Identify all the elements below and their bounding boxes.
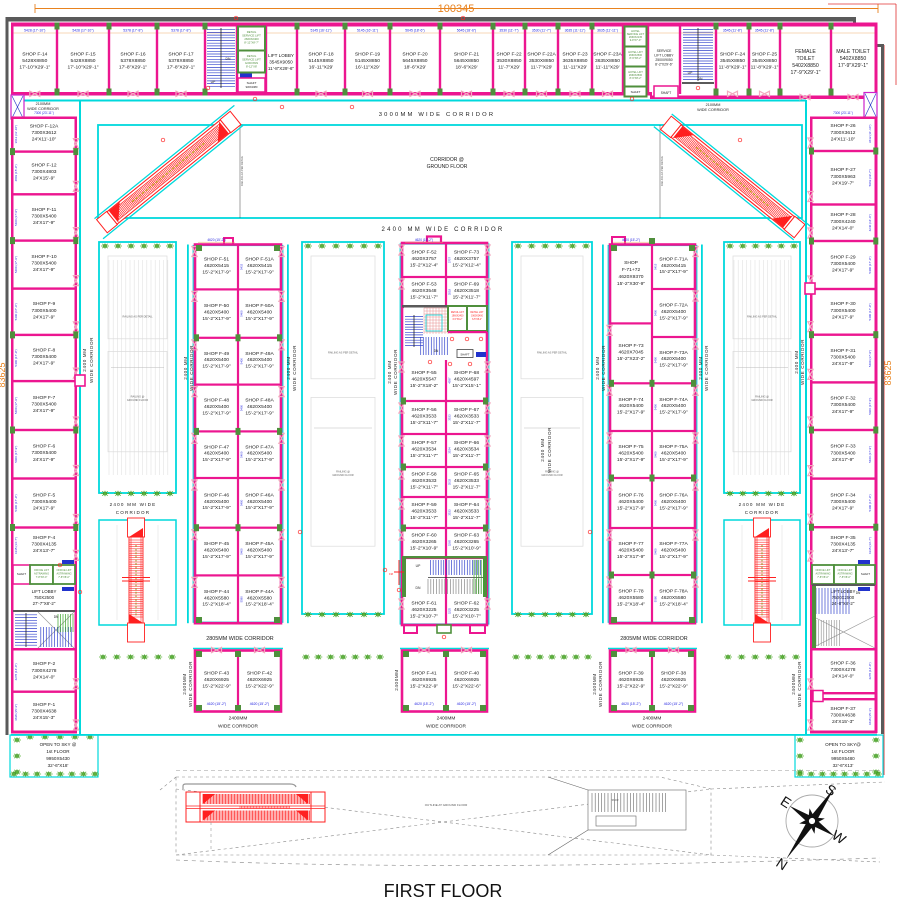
svg-text:2400MM: 2400MM	[394, 669, 399, 690]
svg-text:7300X4240: 7300X4240	[830, 219, 855, 225]
svg-text:DN: DN	[434, 349, 439, 353]
svg-text:5378X8850: 5378X8850	[168, 58, 193, 64]
svg-text:5400 (17'-9"): 5400 (17'-9")	[14, 303, 18, 320]
svg-text:SHOP F-75A: SHOP F-75A	[659, 444, 688, 450]
svg-text:SHOP F-9: SHOP F-9	[33, 301, 56, 307]
svg-text:7300X5400: 7300X5400	[31, 402, 56, 408]
svg-text:15'-2"X17'-9": 15'-2"X17'-9"	[202, 554, 230, 560]
svg-text:DN: DN	[54, 615, 59, 619]
svg-text:SHOP F-10: SHOP F-10	[31, 254, 56, 260]
svg-text:SHOP F-12A: SHOP F-12A	[30, 124, 59, 130]
svg-text:15'-2"X18'-4": 15'-2"X18'-4"	[617, 602, 645, 608]
svg-text:SHOP F-29: SHOP F-29	[830, 254, 855, 260]
svg-text:24'X13'-7": 24'X13'-7"	[33, 548, 55, 554]
svg-text:4620X3533: 4620X3533	[454, 478, 479, 484]
svg-text:SHOP F-69: SHOP F-69	[454, 282, 479, 288]
svg-text:SHOP F-44A: SHOP F-44A	[245, 589, 274, 595]
svg-text:5402X8850: 5402X8850	[840, 56, 867, 62]
svg-text:SHOP F-33: SHOP F-33	[830, 444, 855, 450]
svg-text:15'-2"X22'-9": 15'-2"X22'-9"	[659, 683, 687, 689]
svg-text:8'-12"X8': 8'-12"X8'	[246, 65, 258, 69]
svg-text:5400: 5400	[654, 404, 658, 411]
svg-text:SHOP F-46: SHOP F-46	[204, 493, 229, 499]
svg-text:8'-12"X8'-7": 8'-12"X8'-7"	[244, 41, 259, 45]
svg-text:SHOP F-62: SHOP F-62	[454, 601, 479, 607]
svg-text:SHOP F-32: SHOP F-32	[830, 396, 855, 402]
svg-text:15'-2"X17'-9": 15'-2"X17'-9"	[202, 364, 230, 370]
svg-text:4620X5400: 4620X5400	[247, 451, 272, 457]
svg-text:SHOP F-20: SHOP F-20	[402, 51, 427, 57]
svg-text:8'-9"X8'-2": 8'-9"X8'-2"	[629, 56, 641, 60]
svg-text:24'X11'-10": 24'X11'-10"	[831, 136, 856, 142]
svg-text:4620X5400: 4620X5400	[204, 499, 229, 505]
svg-text:RAILING AS PER DETAIL: RAILING AS PER DETAIL	[328, 351, 359, 355]
svg-text:7300X4135: 7300X4135	[31, 542, 56, 548]
svg-text:WIDE CORRIDOR: WIDE CORRIDOR	[632, 724, 673, 730]
svg-text:3530 (11'-7"): 3530 (11'-7")	[532, 29, 551, 33]
svg-text:WIDE CORRIDOR: WIDE CORRIDOR	[800, 339, 805, 385]
svg-text:SHOP: SHOP	[624, 260, 638, 266]
svg-text:4620X5400: 4620X5400	[618, 451, 643, 457]
svg-text:CORRIDOR @: CORRIDOR @	[430, 157, 464, 163]
svg-text:4620X5400: 4620X5400	[247, 357, 272, 363]
svg-text:WIDE CORRIDOR: WIDE CORRIDOR	[292, 345, 297, 391]
svg-text:15'-2"X18'-4": 15'-2"X18'-4"	[202, 602, 230, 608]
svg-text:4620X5400: 4620X5400	[661, 451, 686, 457]
svg-text:SHAFT: SHAFT	[861, 572, 870, 576]
svg-text:24'X17'-9": 24'X17'-9"	[33, 267, 55, 273]
svg-text:SHOP F-35: SHOP F-35	[830, 535, 855, 541]
svg-text:FIRST FLOOR: FIRST FLOOR	[384, 881, 503, 900]
svg-text:24'X17'-9": 24'X17'-9"	[832, 409, 854, 415]
svg-text:15'-2"X17'-9": 15'-2"X17'-9"	[245, 410, 273, 416]
svg-text:2400MM: 2400MM	[182, 673, 187, 694]
svg-text:24'X17'-9": 24'X17'-9"	[33, 314, 55, 320]
svg-text:3635 (11'-11"): 3635 (11'-11")	[597, 29, 618, 33]
svg-text:15'-2"X10'-9": 15'-2"X10'-9"	[452, 545, 480, 551]
svg-text:3000MM WIDE CORRIDOR: 3000MM WIDE CORRIDOR	[379, 112, 495, 118]
svg-text:4620X3225: 4620X3225	[411, 607, 436, 613]
svg-text:5145X8850: 5145X8850	[355, 58, 380, 64]
svg-text:5400 (17'-9"): 5400 (17'-9")	[14, 494, 18, 511]
svg-text:5415: 5415	[654, 263, 658, 270]
svg-text:SHOP F-6: SHOP F-6	[33, 444, 56, 450]
svg-text:SHOP F-45A: SHOP F-45A	[245, 541, 274, 547]
svg-text:SHOP F-59: SHOP F-59	[411, 502, 436, 508]
svg-text:11'-11"X29': 11'-11"X29'	[563, 65, 587, 71]
svg-text:SHOP F-52: SHOP F-52	[411, 250, 436, 256]
svg-text:15'-2"X10'-7": 15'-2"X10'-7"	[452, 613, 480, 619]
svg-text:4620X5400: 4620X5400	[247, 310, 272, 316]
svg-text:2400 MM: 2400 MM	[540, 438, 545, 461]
svg-text:4620X5400: 4620X5400	[661, 309, 686, 315]
svg-text:2400 MM WIDE: 2400 MM WIDE	[110, 502, 157, 507]
svg-text:GROUND FLOOR: GROUND FLOOR	[751, 398, 772, 402]
svg-text:5400 (17'-9"): 5400 (17'-9")	[14, 397, 18, 414]
svg-text:7300X4803: 7300X4803	[31, 169, 56, 175]
svg-text:5145 (16'-11"): 5145 (16'-11")	[357, 29, 378, 33]
svg-text:SERVICE: SERVICE	[657, 49, 673, 53]
svg-text:LIFT LOBBY: LIFT LOBBY	[268, 53, 294, 58]
svg-text:SHOP F-77A: SHOP F-77A	[659, 541, 688, 547]
svg-text:4620X5400: 4620X5400	[618, 499, 643, 505]
svg-text:RAILING @: RAILING @	[336, 470, 350, 474]
svg-text:24'X15'-3": 24'X15'-3"	[33, 715, 55, 721]
svg-text:15'-2"X17'-9": 15'-2"X17'-9"	[659, 363, 687, 369]
svg-text:7300X4278: 7300X4278	[830, 667, 855, 673]
svg-text:4620X5547: 4620X5547	[411, 377, 436, 383]
svg-text:4620X3225: 4620X3225	[454, 607, 479, 613]
svg-text:2400 MM WIDE CORRIDOR: 2400 MM WIDE CORRIDOR	[382, 227, 505, 233]
svg-text:5645 (18'-6"): 5645 (18'-6")	[405, 29, 424, 33]
svg-text:SHOP F-18: SHOP F-18	[308, 51, 333, 57]
svg-text:SHOP F-25: SHOP F-25	[752, 51, 777, 57]
svg-text:17'-8"X29'-1": 17'-8"X29'-1"	[119, 65, 147, 71]
svg-text:6-5"X8-2": 6-5"X8-2"	[472, 319, 482, 321]
svg-text:GROUND FLOOR: GROUND FLOOR	[541, 473, 562, 477]
svg-text:15'-2"X17'-9": 15'-2"X17'-9"	[659, 457, 687, 463]
svg-text:32'-6"X18': 32'-6"X18'	[48, 763, 69, 768]
svg-text:7300X4278: 7300X4278	[31, 668, 56, 674]
svg-text:SHOP F-78: SHOP F-78	[618, 589, 643, 595]
svg-text:3757: 3757	[448, 256, 452, 263]
svg-text:5400: 5400	[654, 357, 658, 364]
svg-text:17'-10"X29'-1": 17'-10"X29'-1"	[68, 65, 99, 71]
svg-text:DN: DN	[416, 586, 421, 590]
svg-text:5400: 5400	[240, 404, 244, 411]
svg-text:750X2500: 750X2500	[34, 595, 55, 600]
svg-text:15'-2"X10'-7": 15'-2"X10'-7"	[410, 613, 438, 619]
svg-text:SHOP F-2: SHOP F-2	[33, 661, 56, 667]
svg-text:3530X8850: 3530X8850	[529, 58, 554, 64]
svg-text:15'-2"X17'-9": 15'-2"X17'-9"	[245, 364, 273, 370]
svg-text:WIDE CORRIDOR: WIDE CORRIDOR	[218, 724, 259, 730]
svg-text:4620X5400: 4620X5400	[204, 451, 229, 457]
svg-text:SHOP F-44: SHOP F-44	[204, 589, 229, 595]
svg-text:24'X17'-9": 24'X17'-9"	[832, 457, 854, 463]
svg-text:7300X5400: 7300X5400	[31, 499, 56, 505]
svg-text:4240 (14'-0"): 4240 (14'-0")	[868, 214, 872, 231]
svg-text:SHAFT: SHAFT	[17, 572, 26, 576]
svg-text:24'X17'-9": 24'X17'-9"	[832, 315, 854, 321]
svg-text:24'X14'-0": 24'X14'-0"	[832, 674, 854, 680]
svg-text:5402X8850: 5402X8850	[792, 63, 819, 69]
svg-text:5428X8850: 5428X8850	[70, 58, 95, 64]
svg-text:15'-2"X17'-9": 15'-2"X17'-9"	[202, 457, 230, 463]
svg-text:SHOP F-38: SHOP F-38	[661, 671, 686, 677]
svg-text:OPEN TO SKY @: OPEN TO SKY @	[40, 742, 77, 747]
svg-text:4620X6925: 4620X6925	[618, 677, 643, 683]
svg-text:2400 MM: 2400 MM	[183, 356, 188, 379]
svg-text:4620X5400: 4620X5400	[618, 548, 643, 554]
svg-text:3225: 3225	[448, 607, 452, 614]
svg-text:83625: 83625	[883, 360, 893, 385]
svg-text:SHOP F-40: SHOP F-40	[454, 671, 479, 677]
svg-text:17'-9"X29'-1": 17'-9"X29'-1"	[791, 70, 821, 76]
svg-text:5400: 5400	[654, 548, 658, 555]
svg-text:15'-2"X11'-7": 15'-2"X11'-7"	[410, 453, 438, 459]
svg-text:11'-8"X29'-6": 11'-8"X29'-6"	[268, 66, 294, 71]
svg-text:4620 (15'-2"): 4620 (15'-2")	[414, 702, 433, 706]
svg-text:4135 (13'-7"): 4135 (13'-7")	[868, 537, 872, 554]
svg-text:7300 (23'-11"): 7300 (23'-11")	[34, 111, 54, 115]
svg-text:7'-8"X8'-0": 7'-8"X8'-0"	[58, 576, 70, 579]
svg-text:15'-2"X18'-2": 15'-2"X18'-2"	[410, 383, 438, 389]
svg-text:15'-2"X11'-7": 15'-2"X11'-7"	[453, 294, 481, 300]
svg-text:7300X5400: 7300X5400	[31, 261, 56, 267]
svg-text:15'-2"X17'-9": 15'-2"X17'-9"	[659, 315, 687, 321]
svg-text:2100MM: 2100MM	[706, 103, 721, 107]
svg-text:7300X4638: 7300X4638	[830, 713, 855, 719]
svg-text:GROUND FLOOR: GROUND FLOOR	[127, 398, 148, 402]
svg-text:4620X6925: 4620X6925	[411, 677, 436, 683]
svg-text:9950X5430: 9950X5430	[46, 756, 70, 761]
svg-text:SHAFT: SHAFT	[631, 90, 641, 94]
svg-text:SHOP F-23: SHOP F-23	[562, 51, 587, 57]
svg-text:4620X5400: 4620X5400	[247, 499, 272, 505]
svg-text:7'-8"X8'-0": 7'-8"X8'-0"	[839, 576, 851, 579]
svg-text:WIDE CORRIDOR: WIDE CORRIDOR	[704, 345, 709, 391]
svg-text:15'-2"X22'-6": 15'-2"X22'-6"	[452, 683, 480, 689]
svg-text:DN: DN	[856, 591, 861, 595]
svg-text:7300X5400: 7300X5400	[830, 499, 855, 505]
svg-text:3545X9050: 3545X9050	[269, 60, 293, 65]
svg-text:7300X5400: 7300X5400	[830, 261, 855, 267]
svg-text:SHOP F-50: SHOP F-50	[204, 303, 229, 309]
svg-text:15'-2"X17'-9": 15'-2"X17'-9"	[202, 410, 230, 416]
svg-text:15'-2"X11'-7": 15'-2"X11'-7"	[410, 484, 438, 490]
svg-text:4620X5400: 4620X5400	[247, 404, 272, 410]
svg-text:3530 (11'-7"): 3530 (11'-7")	[499, 29, 518, 33]
svg-text:11'-8"X29'-1": 11'-8"X29'-1"	[751, 65, 779, 71]
svg-text:SHOP F-49A: SHOP F-49A	[245, 351, 274, 357]
svg-text:SHOP F-23A: SHOP F-23A	[593, 51, 622, 57]
svg-text:CORRIDOR: CORRIDOR	[116, 510, 151, 515]
svg-text:24'X13'-7": 24'X13'-7"	[832, 548, 854, 554]
svg-text:4620X5400: 4620X5400	[247, 548, 272, 554]
svg-text:15'-2"X12'-4": 15'-2"X12'-4"	[452, 262, 480, 268]
svg-text:11'-7"X29': 11'-7"X29'	[531, 65, 553, 71]
svg-text:15'-2"X17'-9": 15'-2"X17'-9"	[202, 269, 230, 275]
svg-text:SHOP F-53: SHOP F-53	[411, 282, 436, 288]
svg-text:15'-2"X15'-1": 15'-2"X15'-1"	[452, 383, 480, 389]
svg-text:3518: 3518	[448, 288, 452, 295]
svg-text:SHOP F-72A: SHOP F-72A	[659, 303, 688, 309]
svg-text:24'X17'-9": 24'X17'-9"	[832, 361, 854, 367]
svg-text:16'-11"X29': 16'-11"X29'	[309, 65, 334, 71]
svg-text:3534: 3534	[448, 447, 452, 454]
svg-text:2500X9050: 2500X9050	[655, 58, 672, 62]
svg-text:SHOP F-24: SHOP F-24	[720, 51, 745, 57]
svg-text:WIDE CORRIDOR: WIDE CORRIDOR	[89, 337, 94, 383]
svg-text:5400 (17'-9"): 5400 (17'-9")	[14, 446, 18, 463]
svg-text:5580: 5580	[654, 596, 658, 603]
svg-text:15'-2"X18'-4": 15'-2"X18'-4"	[245, 602, 273, 608]
svg-text:1st FLOOR: 1st FLOOR	[46, 749, 70, 754]
svg-text:4620X5400: 4620X5400	[204, 357, 229, 363]
svg-text:15'-2"X11'-7": 15'-2"X11'-7"	[453, 453, 481, 459]
svg-text:7300X4638: 7300X4638	[31, 708, 56, 714]
svg-text:2400 MM: 2400 MM	[286, 356, 291, 379]
svg-text:24'X17'-9": 24'X17'-9"	[832, 506, 854, 512]
svg-text:3635X8850: 3635X8850	[595, 58, 620, 64]
svg-text:5415: 5415	[240, 263, 244, 270]
svg-text:7300X5400: 7300X5400	[31, 213, 56, 219]
svg-text:15'-2"X18'-4": 15'-2"X18'-4"	[659, 602, 687, 608]
svg-text:15'-2"X23'-2": 15'-2"X23'-2"	[617, 356, 645, 362]
svg-text:4620X5580: 4620X5580	[204, 595, 229, 601]
svg-text:4620X5580: 4620X5580	[618, 595, 643, 601]
svg-text:5400: 5400	[240, 358, 244, 365]
svg-text:15'-2"X17'-9": 15'-2"X17'-9"	[245, 554, 273, 560]
svg-text:2805MM WIDE CORRIDOR: 2805MM WIDE CORRIDOR	[206, 636, 273, 642]
svg-text:SHOP F-51A: SHOP F-51A	[245, 257, 274, 263]
svg-text:24'X17'-9": 24'X17'-9"	[832, 268, 854, 274]
svg-text:3265: 3265	[448, 539, 452, 546]
svg-text:SHOP F-57: SHOP F-57	[411, 440, 436, 446]
svg-text:SHOP F-51: SHOP F-51	[204, 257, 229, 263]
svg-text:SHOP F-19: SHOP F-19	[355, 51, 380, 57]
svg-text:SHOP F-47: SHOP F-47	[204, 444, 229, 450]
svg-text:6-5"X8-2": 6-5"X8-2"	[453, 319, 463, 321]
svg-text:SHOP F-8: SHOP F-8	[33, 347, 56, 353]
svg-text:15'-2"X17'-9": 15'-2"X17'-9"	[659, 410, 687, 416]
svg-text:4620X5400: 4620X5400	[661, 548, 686, 554]
svg-text:17'-9"X29'-1": 17'-9"X29'-1"	[838, 63, 868, 69]
svg-text:5400 (17'-9"): 5400 (17'-9")	[868, 446, 872, 463]
svg-text:4620 (15'-2"): 4620 (15'-2")	[250, 702, 269, 706]
svg-text:FEMALE: FEMALE	[795, 49, 816, 55]
svg-text:5645 (18'-6"): 5645 (18'-6")	[457, 29, 476, 33]
svg-text:4278 (14'-0"): 4278 (14'-0")	[14, 663, 18, 680]
svg-text:24'X14'-0": 24'X14'-0"	[832, 225, 854, 231]
svg-text:4620X5580: 4620X5580	[661, 595, 686, 601]
svg-text:SHOP F-7: SHOP F-7	[33, 395, 56, 401]
svg-text:4620X6925: 4620X6925	[204, 677, 229, 683]
svg-text:8'-9"X8'-2": 8'-9"X8'-2"	[629, 76, 641, 80]
svg-text:5400: 5400	[240, 451, 244, 458]
svg-text:7300X5400: 7300X5400	[830, 450, 855, 456]
svg-text:WIDE CORRIDOR: WIDE CORRIDOR	[393, 349, 398, 395]
svg-text:3545X8850: 3545X8850	[720, 58, 745, 64]
svg-text:5145X8850: 5145X8850	[308, 58, 333, 64]
svg-text:WIDE CORRIDOR: WIDE CORRIDOR	[547, 427, 552, 473]
svg-text:3545 (11'-8"): 3545 (11'-8")	[723, 29, 742, 33]
svg-text:RAILING @: RAILING @	[131, 395, 145, 399]
svg-text:24'X14'-0": 24'X14'-0"	[33, 675, 55, 681]
svg-text:4620X3757: 4620X3757	[454, 256, 479, 262]
svg-text:5400 (17'-9"): 5400 (17'-9")	[868, 398, 872, 415]
svg-text:SHOP F-17: SHOP F-17	[168, 51, 193, 57]
svg-text:5400 (17'-9"): 5400 (17'-9")	[14, 256, 18, 273]
svg-text:SHOP F-71A: SHOP F-71A	[659, 256, 688, 262]
svg-text:15'-2"X17'-9": 15'-2"X17'-9"	[202, 316, 230, 322]
svg-text:4620X5400: 4620X5400	[661, 499, 686, 505]
svg-text:5378X8850: 5378X8850	[120, 58, 145, 64]
svg-text:24'X17'-9": 24'X17'-9"	[33, 220, 55, 226]
svg-text:5645X8850: 5645X8850	[402, 58, 427, 64]
svg-text:32'-6"X13': 32'-6"X13'	[833, 763, 854, 768]
svg-text:15'-2"X17'-9": 15'-2"X17'-9"	[245, 505, 273, 511]
svg-text:4620X5400: 4620X5400	[661, 356, 686, 362]
svg-text:RAILING AS PER DETAIL: RAILING AS PER DETAIL	[660, 155, 664, 186]
svg-text:GROUND FLOOR: GROUND FLOOR	[332, 473, 353, 477]
svg-text:SHOP F-26: SHOP F-26	[830, 123, 855, 129]
svg-text:15'-2"X17'-9": 15'-2"X17'-9"	[202, 505, 230, 511]
svg-text:2400MM: 2400MM	[592, 673, 597, 694]
svg-text:15'-2"X22'-9": 15'-2"X22'-9"	[245, 683, 273, 689]
svg-text:UP: UP	[416, 564, 421, 568]
svg-text:5400: 5400	[240, 310, 244, 317]
svg-text:5378 (17'-8"): 5378 (17'-8")	[123, 29, 142, 33]
svg-text:4620 (15'-2"): 4620 (15'-2")	[622, 238, 640, 242]
svg-text:5963 (19'-7"): 5963 (19'-7")	[868, 169, 872, 186]
svg-text:7'-8"X8'-0": 7'-8"X8'-0"	[817, 576, 829, 579]
svg-text:5400: 5400	[654, 499, 658, 506]
svg-text:WIDE CORRIDOR: WIDE CORRIDOR	[797, 661, 802, 707]
svg-text:SHOP F-30: SHOP F-30	[830, 301, 855, 307]
svg-text:SHAFT: SHAFT	[460, 353, 469, 357]
svg-text:15'-2"X17'-9": 15'-2"X17'-9"	[659, 505, 687, 511]
svg-text:15'-2"X17'-9": 15'-2"X17'-9"	[245, 269, 273, 275]
svg-text:4620X3265: 4620X3265	[411, 539, 436, 545]
svg-text:2400MM: 2400MM	[437, 716, 456, 722]
svg-text:4620 (15'-2"): 4620 (15'-2")	[457, 702, 476, 706]
svg-text:2400 MM: 2400 MM	[794, 350, 799, 373]
svg-text:7300X5400: 7300X5400	[31, 354, 56, 360]
svg-text:5400: 5400	[240, 499, 244, 506]
svg-text:7300X5400: 7300X5400	[31, 308, 56, 314]
svg-text:SHOP F-74: SHOP F-74	[618, 397, 643, 403]
svg-text:SHOP F-15: SHOP F-15	[70, 51, 95, 57]
svg-text:5580: 5580	[240, 596, 244, 603]
svg-text:SHOP F-73: SHOP F-73	[618, 343, 643, 349]
svg-text:15'-2"X17'-9": 15'-2"X17'-9"	[617, 410, 645, 416]
svg-text:SHOP F-43: SHOP F-43	[204, 671, 229, 677]
svg-text:SHOP F-22A: SHOP F-22A	[527, 51, 556, 57]
svg-text:7300X5400: 7300X5400	[830, 402, 855, 408]
svg-text:15'-2"X30'-9": 15'-2"X30'-9"	[617, 281, 645, 287]
svg-text:SHOP F-48A: SHOP F-48A	[245, 398, 274, 404]
svg-text:SHOP F-14: SHOP F-14	[22, 51, 47, 57]
svg-text:SHOP F-37: SHOP F-37	[830, 706, 855, 712]
svg-text:7300X3612: 7300X3612	[31, 130, 56, 136]
svg-text:24'X19'-7": 24'X19'-7"	[832, 180, 854, 186]
svg-text:SHOP F-22: SHOP F-22	[496, 51, 521, 57]
svg-text:WIDE CORRIDOR: WIDE CORRIDOR	[601, 345, 606, 391]
svg-text:5400 (17'-9"): 5400 (17'-9")	[868, 350, 872, 367]
svg-text:4620X3533: 4620X3533	[454, 414, 479, 420]
svg-text:RETAIL LIFT: RETAIL LIFT	[451, 311, 465, 314]
svg-text:4620X6925: 4620X6925	[247, 677, 272, 683]
svg-text:4620X4597: 4620X4597	[454, 377, 479, 383]
svg-text:4620X5580: 4620X5580	[247, 595, 272, 601]
svg-text:4278 (14'-0"): 4278 (14'-0")	[868, 662, 872, 679]
svg-text:LIFT LOBBY: LIFT LOBBY	[32, 589, 57, 594]
svg-text:15'-2"X17'-9": 15'-2"X17'-9"	[617, 505, 645, 511]
svg-text:5428X8850: 5428X8850	[22, 58, 47, 64]
svg-text:SHOP F-73A: SHOP F-73A	[659, 350, 688, 356]
svg-text:24'X15'-3": 24'X15'-3"	[832, 719, 854, 725]
svg-text:7300X5400: 7300X5400	[31, 450, 56, 456]
svg-text:SHOP F-65: SHOP F-65	[454, 472, 479, 478]
svg-text:3533: 3533	[448, 414, 452, 421]
svg-text:5428 (17'-10"): 5428 (17'-10")	[24, 29, 45, 33]
svg-text:4620X5400: 4620X5400	[204, 548, 229, 554]
svg-text:SHOP F-66: SHOP F-66	[454, 440, 479, 446]
svg-text:SHOP F-5: SHOP F-5	[33, 492, 56, 498]
svg-text:3635X8850: 3635X8850	[562, 58, 587, 64]
